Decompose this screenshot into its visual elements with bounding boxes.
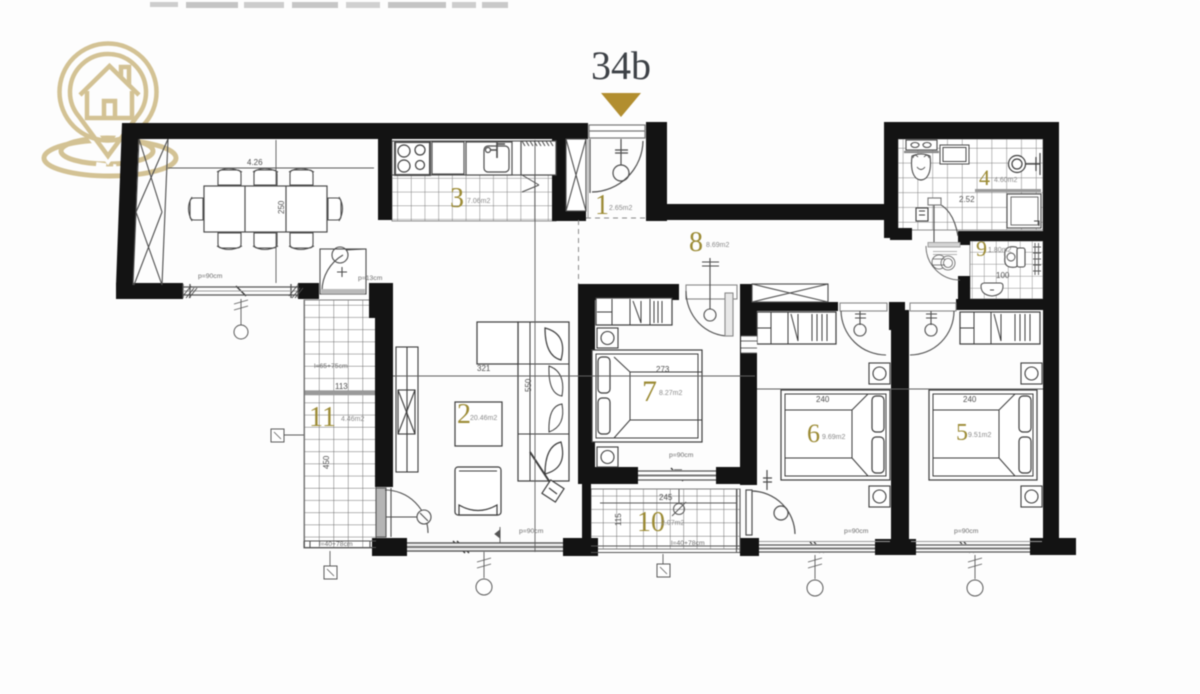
- svg-text:2.07m2: 2.07m2: [661, 520, 684, 527]
- svg-text:7: 7: [642, 375, 657, 408]
- svg-text:l=65+75cm: l=65+75cm: [314, 363, 348, 370]
- svg-text:9.51m2: 9.51m2: [968, 432, 991, 439]
- svg-text:1.80m2: 1.80m2: [988, 247, 1011, 254]
- svg-text:450: 450: [322, 455, 331, 469]
- svg-text:p=90cm: p=90cm: [198, 273, 223, 280]
- svg-text:1: 1: [595, 190, 609, 221]
- svg-text:8.69m2: 8.69m2: [706, 242, 729, 249]
- svg-text:4.60m2: 4.60m2: [994, 177, 1017, 184]
- svg-text:p=90cm: p=90cm: [669, 452, 694, 459]
- svg-text:20.46m2: 20.46m2: [470, 415, 497, 422]
- svg-text:8: 8: [689, 227, 703, 258]
- svg-text:273: 273: [656, 365, 670, 374]
- svg-text:4.46m2: 4.46m2: [341, 416, 364, 423]
- svg-text:245: 245: [659, 493, 673, 502]
- svg-text:7.06m2: 7.06m2: [467, 198, 490, 205]
- svg-text:550: 550: [524, 378, 533, 392]
- svg-text:p=90cm: p=90cm: [519, 528, 544, 535]
- svg-text:p=90cm: p=90cm: [844, 528, 869, 535]
- svg-text:5: 5: [956, 420, 968, 446]
- svg-text:6: 6: [807, 419, 820, 448]
- svg-text:11: 11: [309, 402, 336, 433]
- svg-text:250: 250: [277, 200, 286, 214]
- svg-text:2.52: 2.52: [959, 195, 975, 204]
- svg-text:100: 100: [996, 271, 1010, 280]
- svg-text:115: 115: [614, 513, 623, 526]
- svg-text:240: 240: [816, 395, 830, 404]
- svg-text:3: 3: [450, 183, 464, 214]
- svg-text:2: 2: [457, 399, 471, 430]
- svg-text:321: 321: [477, 364, 491, 373]
- svg-text:p=90cm: p=90cm: [954, 528, 979, 535]
- svg-text:9: 9: [976, 236, 987, 261]
- svg-text:2.65m2: 2.65m2: [609, 205, 632, 212]
- svg-text:4.26: 4.26: [247, 158, 263, 167]
- svg-text:34b: 34b: [591, 43, 651, 88]
- svg-text:113: 113: [335, 382, 348, 391]
- svg-text:4: 4: [979, 165, 990, 190]
- svg-text:240: 240: [963, 395, 977, 404]
- svg-text:8.27m2: 8.27m2: [659, 390, 682, 397]
- svg-text:p=13cm: p=13cm: [358, 275, 383, 282]
- svg-text:9.69m2: 9.69m2: [822, 434, 845, 441]
